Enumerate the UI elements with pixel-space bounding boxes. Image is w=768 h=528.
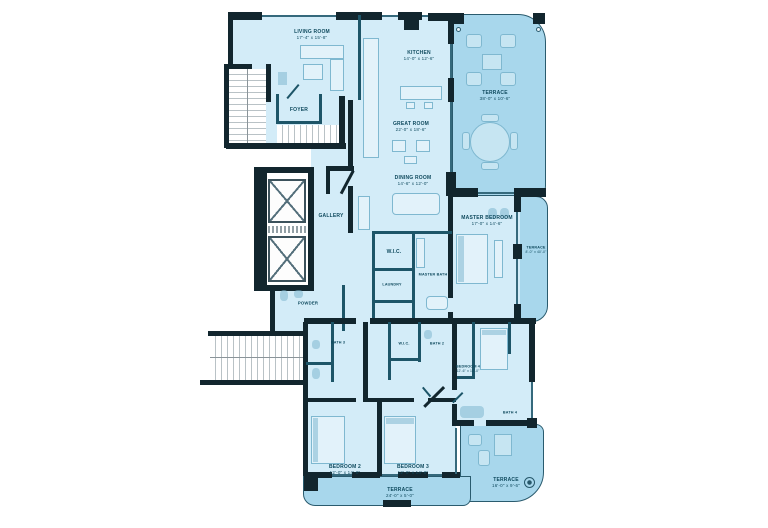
room-dims: 17'-0" x 14'-6"	[461, 221, 512, 227]
column-base-icon	[536, 27, 541, 32]
wall	[339, 96, 345, 149]
round-dining-table-outline	[470, 122, 510, 162]
window-line	[516, 259, 518, 304]
bed-pillows	[386, 418, 414, 424]
chaise-outline	[330, 59, 344, 91]
kitchen-cabinets-outline	[363, 38, 379, 158]
elevator-core-wall	[254, 167, 267, 291]
wall	[514, 196, 521, 212]
partition	[331, 322, 334, 382]
room-label-dining: DINING ROOM 14'-6" x 12'-0"	[395, 175, 432, 187]
patio-chair-outline	[500, 34, 516, 48]
window-line	[450, 44, 452, 78]
vanity-outline	[416, 238, 425, 268]
partition	[358, 15, 361, 100]
room-dims: 14'-6" x 12'-0"	[395, 181, 432, 187]
room-name: BATH 2	[430, 342, 444, 347]
patio-chair-outline	[481, 114, 499, 122]
wall	[377, 400, 382, 476]
wall	[452, 318, 457, 390]
wall-stub	[304, 478, 318, 491]
wall	[200, 380, 308, 385]
wall	[452, 420, 534, 426]
room-name: BATH 4	[503, 411, 517, 416]
wall	[226, 143, 346, 149]
wall	[348, 186, 353, 233]
coffee-table-outline	[303, 64, 323, 80]
elevator-cab-1	[268, 179, 306, 223]
room-label-powder: POWDER	[298, 301, 318, 306]
tub-outline	[460, 406, 484, 418]
partition	[372, 268, 414, 271]
terrace-dims: 38'-0" x 10'-6"	[480, 96, 511, 102]
wall	[442, 472, 460, 478]
terrace-label-north: TERRACE 38'-0" x 10'-6"	[480, 90, 511, 102]
sofa-outline	[300, 45, 344, 59]
window-line	[531, 382, 533, 422]
wall	[266, 64, 271, 102]
room-name: LAUNDRY	[382, 283, 401, 288]
wall	[368, 398, 414, 402]
room-dims: 14'-0" x 12'-6"	[404, 56, 435, 62]
elevator-core-wall	[308, 167, 314, 291]
wall	[228, 12, 233, 68]
room-label-gallery: GALLERY	[318, 213, 343, 219]
room-label-bedroom3: BEDROOM 3 12'-0" x 14'-0"	[397, 464, 429, 476]
floor-plan: LIVING ROOM 17'-4" x 15'-8" KITCHEN 14'-…	[0, 0, 768, 528]
partition	[457, 376, 475, 379]
room-name: FOYER	[290, 107, 308, 113]
patio-chair-outline	[466, 72, 482, 86]
partition	[412, 231, 415, 323]
tv-console	[278, 72, 287, 85]
closet-wall	[326, 166, 330, 194]
wall	[513, 244, 522, 259]
foyer-wall	[319, 94, 322, 124]
armchair-outline	[392, 140, 406, 152]
patio-chair-outline	[466, 34, 482, 48]
room-dims: 12'-0" x 14'-0"	[397, 470, 429, 476]
room-dims: 12'-0" x 14'-0"	[329, 470, 361, 476]
foyer-wall	[276, 121, 322, 124]
wall	[404, 18, 419, 30]
room-label-wic-master: W.I.C.	[387, 249, 402, 255]
room-label-bath4: BATH 4	[503, 411, 517, 416]
terrace-dims: 8'-0" x 40'-0"	[526, 250, 547, 254]
stool-outline	[406, 102, 415, 109]
window-line	[455, 428, 457, 474]
room-name: MASTER BATH	[419, 273, 448, 278]
patio-chair-outline	[481, 162, 499, 170]
room-label-wic2: W.I.C.	[398, 342, 409, 347]
terrace-dims: 16'-0" x 9'-6"	[492, 483, 520, 489]
room-label-living: LIVING ROOM 17'-4" x 15'-8"	[294, 29, 330, 41]
side-table-outline	[404, 156, 417, 164]
room-label-kitchen: KITCHEN 14'-0" x 12'-6"	[404, 50, 435, 62]
patio-chair-outline	[500, 72, 516, 86]
toilet-outline	[280, 290, 288, 301]
stair-rail	[210, 357, 304, 358]
room-name: W.I.C.	[387, 249, 402, 255]
toilet-outline	[312, 368, 320, 379]
bed-pillows	[458, 236, 464, 282]
terrace-label-east: TERRACE 8'-0" x 40'-0"	[526, 246, 547, 255]
wall	[452, 188, 478, 197]
room-name: BATH 3	[331, 341, 345, 346]
tub-outline	[426, 296, 448, 310]
patio-table-outline	[494, 434, 512, 456]
dining-table-outline	[392, 193, 440, 215]
room-label-great: GREAT ROOM 22'-0" x 18'-6"	[393, 121, 429, 133]
wall	[448, 78, 454, 102]
terrace-east	[518, 196, 548, 322]
room-label-master-bath: MASTER BATH	[419, 273, 448, 278]
stair-rail	[247, 69, 248, 143]
room-label-foyer: FOYER	[290, 107, 308, 113]
compass-icon	[524, 477, 535, 488]
window-line	[478, 192, 514, 194]
patio-chair-outline	[468, 434, 482, 446]
bed-pillows	[313, 418, 318, 462]
kitchen-island-outline	[400, 86, 442, 100]
wall	[529, 318, 535, 382]
column-base-icon	[456, 27, 461, 32]
wall-stub	[383, 500, 411, 507]
partition	[372, 300, 414, 303]
wall	[363, 322, 368, 402]
elevator-cab-2	[268, 236, 306, 282]
patio-chair-outline	[510, 132, 518, 150]
room-label-bath2: BATH 2	[430, 342, 444, 347]
foyer-wall	[276, 94, 279, 124]
room-label-bedroom4: BEDROOM 4 12'-6" x 13'-0"	[456, 365, 480, 374]
wall	[452, 318, 536, 324]
terrace-label-south: TERRACE 24'-0" x 5'-0"	[386, 487, 414, 499]
window-line	[450, 102, 452, 172]
room-name: W.I.C.	[398, 342, 409, 347]
window-line	[516, 212, 518, 244]
wall	[270, 285, 275, 333]
room-dims: 17'-4" x 15'-8"	[294, 35, 330, 41]
wall	[304, 318, 456, 324]
elevator-door-hatch	[268, 226, 306, 233]
sink-outline	[312, 340, 320, 349]
wall	[306, 398, 356, 402]
room-dims: 22'-0" x 18'-6"	[393, 127, 429, 133]
stool-outline	[424, 102, 433, 109]
door-gap	[448, 298, 453, 312]
room-label-laundry: LAUNDRY	[382, 283, 401, 288]
room-name: GALLERY	[318, 213, 343, 219]
room-label-bedroom2: BEDROOM 2 12'-0" x 14'-0"	[329, 464, 361, 476]
sink-outline	[294, 290, 303, 298]
stairs-upper-landing	[277, 125, 339, 143]
wall	[448, 14, 454, 44]
partition	[342, 285, 345, 331]
sofa-outline	[358, 196, 370, 230]
terrace-label-southeast: TERRACE 16'-0" x 9'-6"	[492, 477, 520, 489]
bed-pillows	[482, 330, 506, 335]
armchair-outline	[416, 140, 430, 152]
partition	[372, 231, 375, 323]
patio-chair-outline	[478, 450, 490, 466]
sink-outline	[424, 330, 432, 339]
partition	[306, 362, 334, 365]
door-gap	[474, 420, 486, 426]
terrace-dims: 24'-0" x 5'-0"	[386, 493, 414, 499]
partition	[388, 322, 391, 380]
partition	[508, 322, 511, 354]
stairs-lower-flight	[210, 336, 304, 380]
dresser-outline	[494, 240, 503, 278]
partition	[418, 322, 421, 362]
partition	[388, 358, 421, 361]
column	[533, 13, 545, 24]
room-label-bath3: BATH 3	[331, 341, 345, 346]
room-name: POWDER	[298, 301, 318, 306]
wall	[348, 100, 353, 170]
room-label-master-bedroom: MASTER BEDROOM 17'-0" x 14'-6"	[461, 215, 512, 227]
room-dims: 12'-6" x 13'-0"	[456, 369, 480, 373]
patio-chair-outline	[462, 132, 470, 150]
patio-table-outline	[482, 54, 502, 70]
wall	[228, 12, 262, 20]
closet-wall	[326, 166, 354, 171]
